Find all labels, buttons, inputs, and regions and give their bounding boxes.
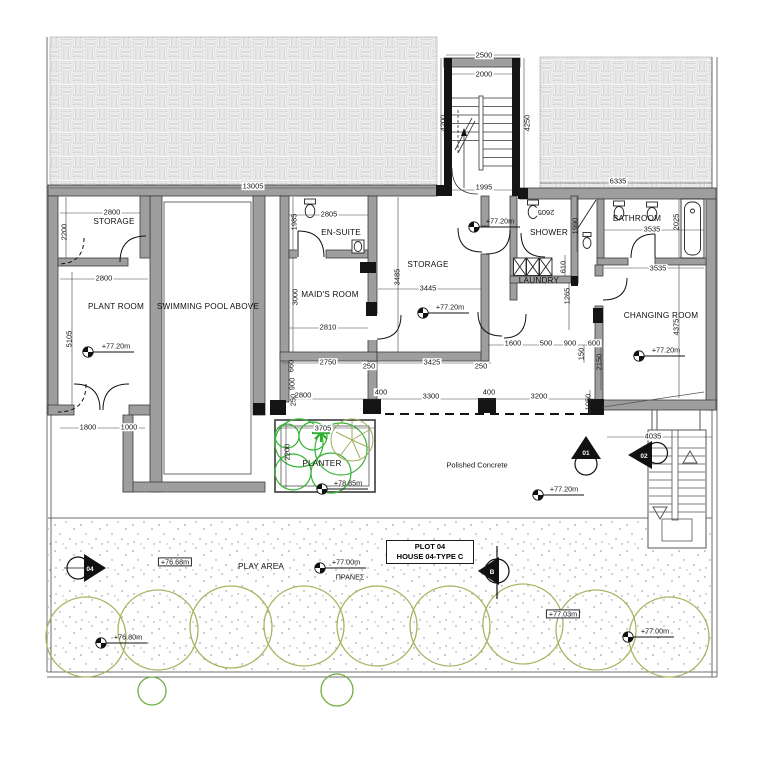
area-label-polished-concrete: Polished Concrete	[446, 461, 507, 469]
dim-1995: 1995	[475, 183, 494, 191]
dim-150: 150	[577, 348, 585, 361]
dim-2200-storage: 2200	[60, 224, 68, 241]
room-label-plant-room: PLANT ROOM	[88, 303, 144, 311]
dim-400-a: 400	[374, 388, 389, 396]
dim-2500: 2500	[475, 51, 494, 59]
dim-1050: 1050	[584, 394, 592, 411]
dim-1990: 1990	[571, 218, 579, 235]
dim-2800-plant: 2800	[95, 274, 114, 282]
dim-2805: 2805	[320, 210, 339, 218]
level-play-area-boxed: +76.68m	[158, 557, 192, 566]
dim-5105: 5105	[65, 331, 73, 348]
dim-4035: 4035	[644, 432, 663, 440]
dim-1985: 1985	[290, 214, 298, 231]
pool-inner	[164, 202, 251, 474]
room-label-bathroom: BATHROOM	[613, 215, 661, 223]
shower-screen	[578, 200, 596, 228]
dim-2200-planter: 2200	[283, 444, 291, 461]
washing-machines	[514, 258, 553, 276]
room-label-storage-center: STORAGE	[407, 261, 448, 269]
section-02-label: 02	[640, 453, 648, 460]
dim-600: 600	[587, 339, 602, 347]
floor-plan: 01 02 04 B STORAGE PLANT ROOM SWIMMING P…	[0, 0, 763, 758]
dim-610: 610	[559, 261, 567, 274]
dim-2150: 2150	[595, 354, 603, 371]
dim-13005: 13005	[242, 182, 265, 190]
dim-3200: 3200	[530, 392, 549, 400]
dim-2800-storage: 2800	[103, 208, 122, 216]
dim-660: 660	[287, 360, 295, 373]
paving-north	[50, 37, 712, 190]
dim-1800: 1800	[79, 423, 98, 431]
level-changing-room: +77.20m	[652, 346, 680, 353]
dim-3535-a: 3535	[643, 225, 662, 233]
dim-2810: 2810	[319, 323, 338, 331]
room-label-maids-room: MAID'S ROOM	[301, 291, 358, 299]
dim-250-a: 250	[362, 362, 377, 370]
dim-4375: 4375	[672, 319, 680, 336]
dim-500: 500	[539, 339, 554, 347]
section-b-label: B	[490, 569, 495, 576]
dim-900-b: 900	[288, 378, 296, 391]
section-marker-01: 01	[571, 436, 601, 475]
room-label-en-suite: EN-SUITE	[321, 229, 361, 237]
plot-title-box: PLOT 04 HOUSE 04-TYPE C	[386, 540, 474, 564]
level-storage-entry: +77.20m	[486, 217, 514, 224]
level-planter: +78.85m	[334, 479, 362, 486]
dim-3300: 3300	[422, 392, 441, 400]
dim-4200: 4200	[439, 115, 447, 132]
dim-2025: 2025	[672, 214, 680, 231]
section-01-label: 01	[582, 450, 590, 457]
floor-plan-canvas: 01 02 04 B	[0, 0, 763, 758]
dim-250-b: 250	[474, 362, 489, 370]
dim-3705: 3705	[314, 424, 333, 432]
level-courtyard: +77.20m	[550, 485, 578, 492]
level-hedge-west: +76.80m	[114, 633, 142, 640]
plot-line-1: PLOT 04	[390, 542, 470, 552]
dim-3535-b: 3535	[649, 264, 668, 272]
level-east-boxed: +77.03m	[546, 609, 580, 618]
room-label-storage-left: STORAGE	[93, 218, 134, 226]
dim-2750: 2750	[319, 358, 338, 366]
room-label-shower: SHOWER	[530, 229, 568, 237]
dim-4250: 4250	[523, 115, 531, 132]
dim-3425: 3425	[423, 358, 442, 366]
dim-1000: 1000	[120, 423, 139, 431]
dim-3485: 3485	[393, 269, 401, 286]
hedge-overflow	[138, 674, 353, 706]
dim-1265: 1265	[563, 288, 571, 305]
stair-north	[452, 96, 512, 194]
play-area-surface	[48, 518, 712, 672]
dim-250-c: 250	[289, 394, 297, 407]
room-label-swimming-pool: SWIMMING POOL ABOVE	[157, 303, 259, 311]
bathtub	[681, 199, 704, 258]
sink-ensuite	[352, 240, 364, 253]
room-label-changing-room: CHANGING ROOM	[624, 312, 698, 320]
level-plant-room: +77.20m	[102, 342, 130, 349]
level-hedge-east: +77.00m	[641, 627, 669, 634]
dim-1600: 1600	[504, 339, 523, 347]
dim-400-b: 400	[482, 388, 497, 396]
plot-line-2: HOUSE 04-TYPE C	[390, 552, 470, 562]
dim-3000: 3000	[291, 289, 299, 306]
dim-900: 900	[563, 339, 578, 347]
dim-2000: 2000	[475, 70, 494, 78]
room-label-laundry: LAUNDRY	[519, 277, 559, 285]
level-pranes: +77.00m	[332, 558, 360, 565]
wc-cubicle	[583, 233, 591, 249]
dim-2605: 2605	[537, 208, 556, 216]
dim-3445: 3445	[419, 284, 438, 292]
level-storage-center: +77.20m	[436, 303, 464, 310]
area-label-pranes: ΠΡΑΝΕΣ	[336, 573, 365, 580]
section-04-label: 04	[86, 566, 94, 573]
dim-6335: 6335	[609, 177, 628, 185]
area-label-planter: PLANTER	[302, 460, 341, 468]
area-label-play-area: PLAY AREA	[238, 563, 284, 571]
